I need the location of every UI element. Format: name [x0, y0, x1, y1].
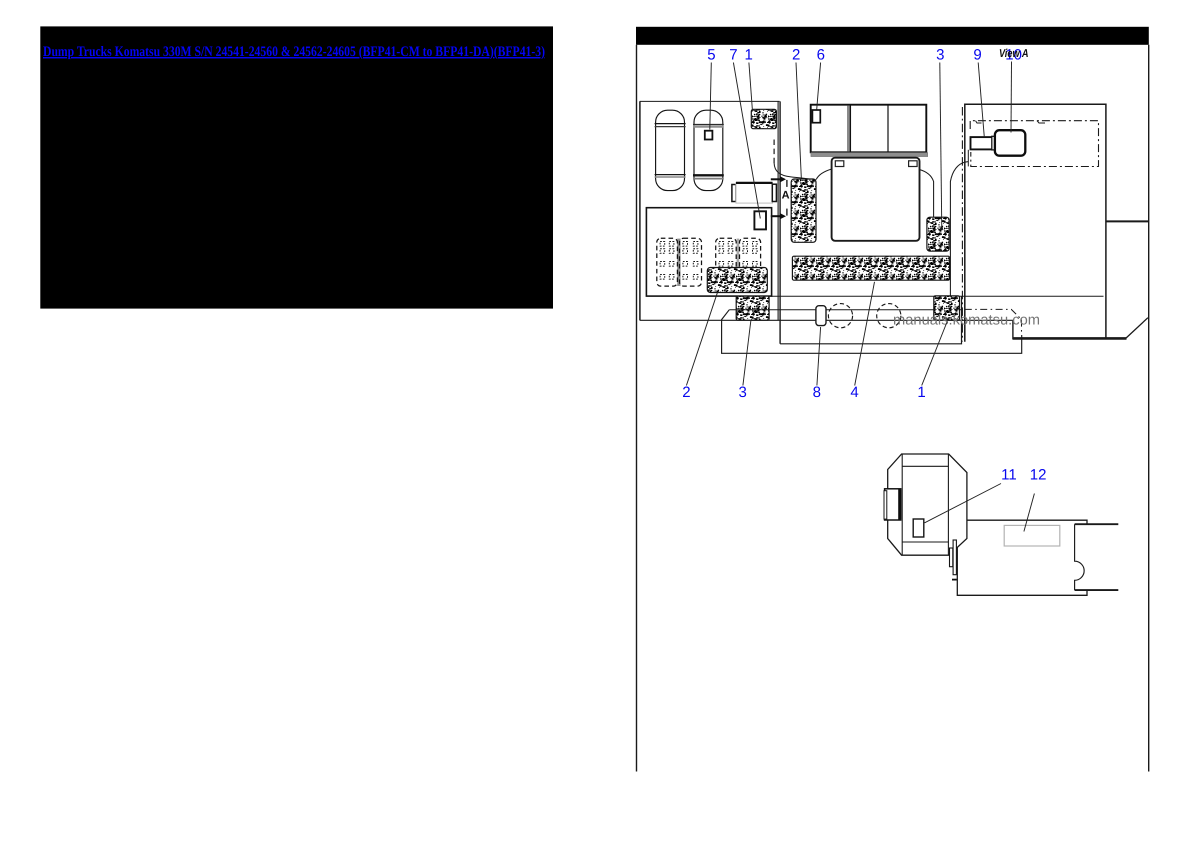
- svg-text:View A: View A: [999, 48, 1029, 60]
- svg-text:1: 1: [745, 46, 753, 63]
- svg-text:12: 12: [1030, 466, 1047, 483]
- svg-text:2: 2: [682, 384, 690, 401]
- svg-text:11: 11: [1001, 466, 1017, 483]
- svg-text:9: 9: [973, 46, 981, 63]
- svg-text:manuals.komatsu.com: manuals.komatsu.com: [893, 312, 1040, 328]
- svg-text:6: 6: [817, 46, 825, 63]
- svg-text:5: 5: [707, 46, 715, 63]
- svg-text:4: 4: [850, 384, 858, 401]
- svg-text:Dump Trucks Komatsu 330M S/N 2: Dump Trucks Komatsu 330M S/N 24541-24560…: [43, 44, 545, 60]
- svg-text:2: 2: [792, 46, 800, 63]
- svg-text:3: 3: [739, 384, 747, 401]
- svg-text:1: 1: [917, 384, 925, 401]
- svg-text:A: A: [782, 190, 790, 202]
- svg-text:3: 3: [936, 46, 944, 63]
- svg-text:7: 7: [729, 46, 737, 63]
- svg-text:8: 8: [813, 384, 821, 401]
